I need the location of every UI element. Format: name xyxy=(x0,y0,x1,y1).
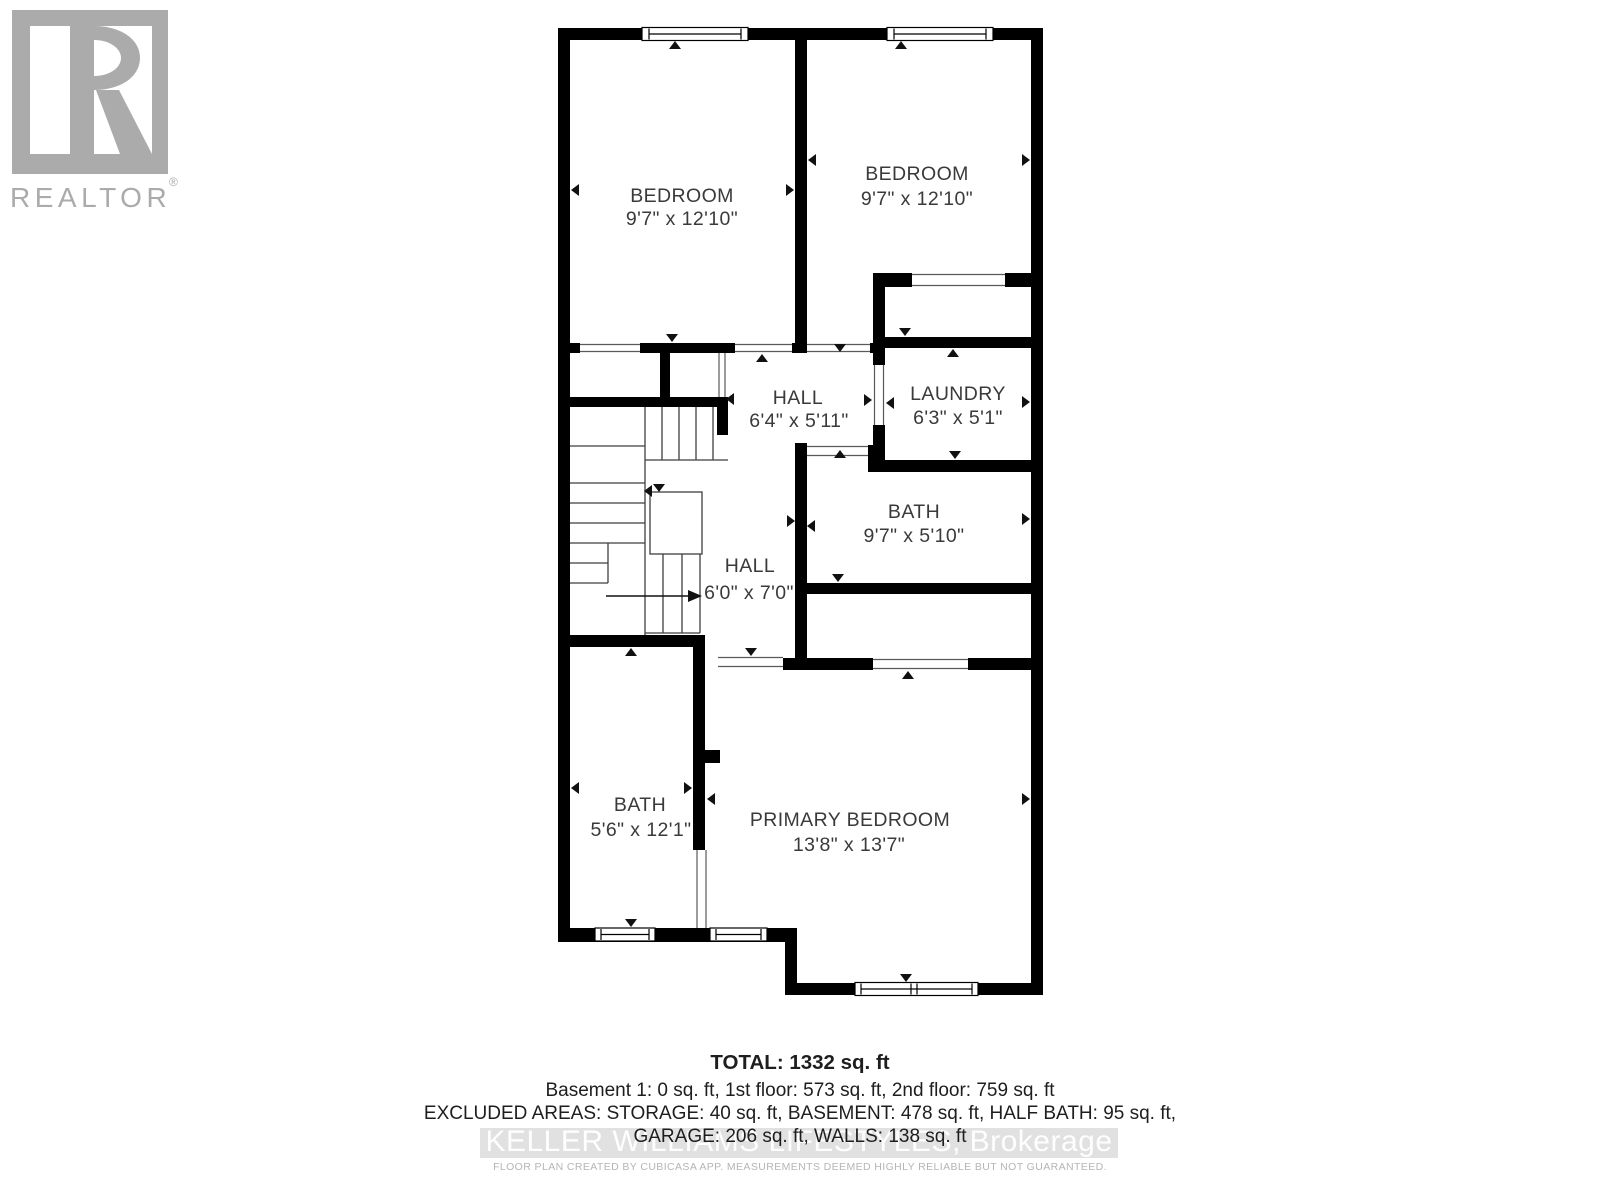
room-label-bedroom-left: BEDROOM 9'7" x 12'10" xyxy=(626,185,738,230)
room-name: BEDROOM xyxy=(865,163,969,185)
room-label-bath-lower: BATH 5'6" x 12'1" xyxy=(591,794,692,841)
floorplan-page: REALTOR ® xyxy=(0,0,1600,1200)
arrow-down-icon xyxy=(899,328,911,336)
floor-plan-svg: REALTOR ® xyxy=(0,0,1600,1200)
room-label-primary-bedroom: PRIMARY BEDROOM 13'8" x 13'7" xyxy=(750,809,950,856)
registered-trademark-icon: ® xyxy=(169,175,178,189)
room-dims: 9'7" x 5'10" xyxy=(864,525,965,547)
room-name: BEDROOM xyxy=(630,185,734,207)
room-dims: 13'8" x 13'7" xyxy=(793,834,905,856)
room-dims: 6'0" x 7'0" xyxy=(704,582,794,604)
arrow-up-icon xyxy=(625,648,637,656)
arrow-left-icon xyxy=(571,782,579,794)
double-window xyxy=(855,983,978,996)
arrow-down-icon xyxy=(900,974,912,982)
arrow-down-icon xyxy=(832,574,844,582)
arrow-left-icon xyxy=(707,793,715,805)
arrow-up-icon xyxy=(902,671,914,679)
room-dims: 6'4" x 5'11" xyxy=(749,410,848,432)
room-label-laundry: LAUNDRY 6'3" x 5'1" xyxy=(910,383,1006,429)
room-name: BATH xyxy=(614,794,666,816)
room-name: BATH xyxy=(888,501,940,523)
room-label-hall-upper: HALL 6'4" x 5'11" xyxy=(749,387,848,432)
arrow-right-icon xyxy=(1022,793,1030,805)
arrow-down-icon xyxy=(653,484,665,492)
room-name: PRIMARY BEDROOM xyxy=(750,809,950,831)
arrow-left-icon xyxy=(571,184,579,196)
realtor-wordmark: REALTOR xyxy=(10,182,171,213)
arrow-down-icon xyxy=(666,334,678,342)
arrow-down-icon xyxy=(745,648,757,656)
window xyxy=(887,28,993,41)
window xyxy=(710,928,767,941)
room-label-bath-upper: BATH 9'7" x 5'10" xyxy=(864,501,965,547)
arrow-right-icon xyxy=(684,782,692,794)
disclaimer-text: FLOOR PLAN CREATED BY CUBICASA APP. MEAS… xyxy=(0,1161,1600,1173)
arrow-left-icon xyxy=(886,397,894,409)
arrow-right-icon xyxy=(1022,154,1030,166)
window xyxy=(642,28,748,41)
room-dims: 5'6" x 12'1" xyxy=(591,819,692,841)
arrow-down-icon xyxy=(949,451,961,459)
arrow-right-icon xyxy=(1022,513,1030,525)
arrow-up-icon xyxy=(895,41,907,49)
room-label-bedroom-right: BEDROOM 9'7" x 12'10" xyxy=(861,163,973,210)
arrow-up-icon xyxy=(669,41,681,49)
arrow-right-icon xyxy=(864,394,872,406)
arrow-right-icon xyxy=(1022,396,1030,408)
realtor-logo: REALTOR ® xyxy=(10,10,178,213)
room-label-hall-lower: HALL 6'0" x 7'0" xyxy=(704,555,794,604)
arrow-down-icon xyxy=(625,919,637,927)
room-name: HALL xyxy=(773,387,823,409)
room-name: HALL xyxy=(725,555,775,577)
arrow-up-icon xyxy=(756,354,768,362)
window xyxy=(595,928,655,941)
arrow-left-icon xyxy=(808,154,816,166)
arrow-up-icon xyxy=(947,349,959,357)
room-dims: 6'3" x 5'1" xyxy=(913,407,1003,429)
brokerage-watermark: KELLER WILLIAMS LIFESTYLES, Brokerage xyxy=(480,1126,1118,1158)
arrow-left-icon xyxy=(807,520,815,532)
arrow-up-icon xyxy=(834,450,846,458)
arrow-right-icon xyxy=(787,515,795,527)
room-dims: 9'7" x 12'10" xyxy=(626,208,738,230)
arrow-right-icon xyxy=(786,184,794,196)
room-name: LAUNDRY xyxy=(910,383,1006,405)
room-dims: 9'7" x 12'10" xyxy=(861,188,973,210)
